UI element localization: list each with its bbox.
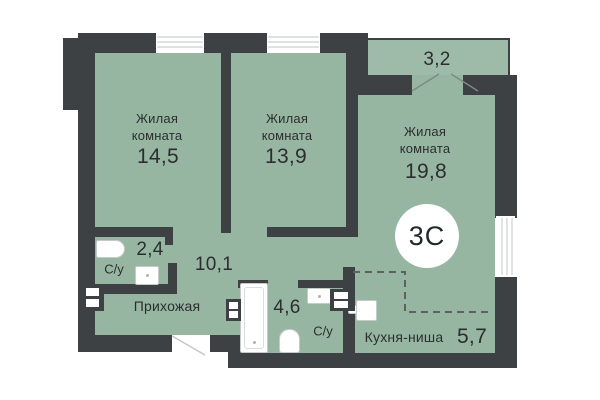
window-living3	[496, 216, 515, 277]
wall-top-b	[204, 33, 267, 53]
toilet-icon	[279, 329, 300, 353]
room-area-living3: 19,8	[405, 160, 447, 184]
room-area-bath1: 2,4	[136, 239, 163, 261]
wall-room3-top	[358, 75, 412, 95]
room-area-living1: 14,5	[137, 145, 179, 169]
wall-living2-bottom	[267, 227, 358, 237]
wall-bottom-main	[240, 353, 517, 368]
wall-bath1-bottom	[95, 284, 177, 294]
room-area-living2: 13,9	[265, 145, 307, 169]
wall-bath2-top-right	[298, 280, 348, 288]
utility-shaft-icon	[81, 284, 104, 311]
sink-icon	[307, 288, 331, 304]
hallway-area: 10,1	[195, 254, 233, 276]
kitchen-sink-icon	[356, 300, 377, 321]
bathtub-icon	[96, 240, 125, 258]
wall-bath2-right	[343, 267, 355, 368]
room-label-bath1: С/у	[104, 262, 124, 277]
balcony-area: 3,2	[423, 49, 450, 71]
wall-bottom-left	[78, 335, 172, 352]
shower-cabin-icon	[240, 283, 268, 353]
window-living1	[156, 30, 204, 53]
room-label-living2: Жилая комната	[244, 110, 330, 144]
room-area-bath2: 4,6	[273, 297, 300, 319]
room-label-bath2: С/у	[313, 324, 333, 339]
wall-bath1-top	[95, 227, 173, 237]
apartment-type-badge: 3С	[395, 204, 459, 268]
kitchen-area: 5,7	[457, 325, 487, 349]
utility-shaft-icon	[226, 299, 241, 321]
sink-icon	[135, 266, 159, 285]
wall-right-upper	[495, 75, 517, 218]
floor-plan: Жилая комната 14,5 Жилая комната 13,9 Жи…	[0, 0, 600, 400]
entry-door-swing-line	[172, 336, 205, 355]
hallway-label: Прихожая	[134, 298, 200, 314]
wall-top-a	[78, 33, 156, 53]
wall-bath1-door-stub	[165, 227, 173, 245]
wall-between-hall-living3	[346, 95, 358, 232]
room-label-living1: Жилая комната	[114, 110, 200, 144]
kitchen-label: Кухня-ниша	[365, 329, 444, 345]
wall-between-living1-living2	[221, 53, 231, 233]
window-living2	[267, 30, 320, 53]
utility-shaft-icon	[330, 289, 355, 311]
room-label-living3: Жилая комната	[382, 123, 468, 157]
